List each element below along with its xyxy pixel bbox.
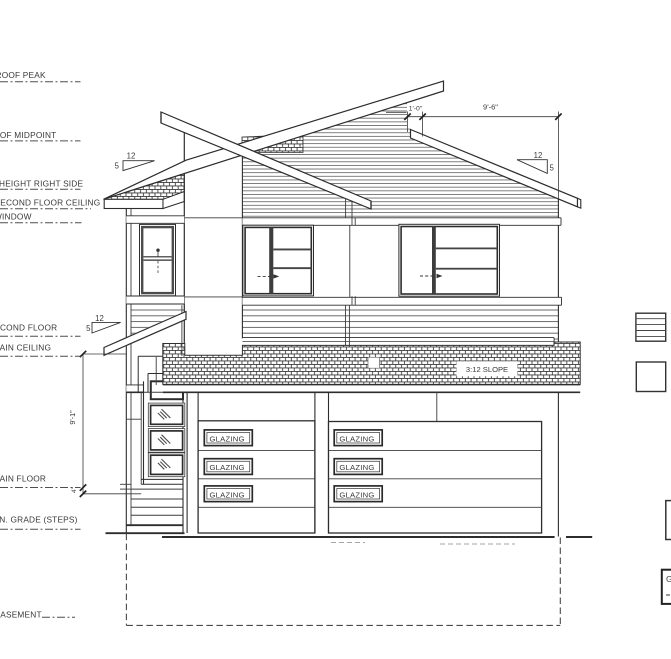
svg-text:9'-6": 9'-6": [483, 103, 498, 112]
svg-text:GLAZING: GLAZING: [339, 434, 374, 443]
svg-text:MAIN CEILING: MAIN CEILING: [0, 343, 51, 353]
svg-text:5: 5: [550, 164, 555, 173]
svg-text:9'-1": 9'-1": [68, 410, 77, 425]
svg-text:SECOND FLOOR CEILING: SECOND FLOOR CEILING: [0, 198, 100, 208]
svg-text:MAIN FLOOR: MAIN FLOOR: [0, 473, 46, 483]
svg-text:FIN. GRADE (STEPS): FIN. GRADE (STEPS): [0, 515, 78, 525]
svg-text:GLAZING: GLAZING: [339, 490, 374, 499]
svg-text:3:12 SLOPE: 3:12 SLOPE: [466, 365, 508, 374]
svg-text:1'-0": 1'-0": [409, 105, 423, 112]
svg-text:GLAZING: GLAZING: [210, 434, 245, 443]
svg-text:GLAZING: GLAZING: [210, 463, 245, 472]
svg-text:5: 5: [115, 161, 120, 170]
svg-text:SECOND FLOOR: SECOND FLOOR: [0, 322, 57, 332]
svg-text:WINDOW: WINDOW: [0, 211, 32, 221]
svg-text:ROOF PEAK: ROOF PEAK: [0, 70, 46, 80]
svg-text:GLAZING: GLAZING: [210, 490, 245, 499]
svg-text:HEIGHT RIGHT SIDE: HEIGHT RIGHT SIDE: [0, 178, 83, 188]
svg-text:ROOF MIDPOINT: ROOF MIDPOINT: [0, 130, 56, 140]
svg-text:12: 12: [95, 314, 104, 323]
svg-text:5: 5: [86, 324, 91, 333]
svg-text:G: G: [666, 574, 671, 584]
svg-text:GLAZING: GLAZING: [339, 463, 374, 472]
svg-text:BASEMENT: BASEMENT: [0, 609, 42, 619]
svg-text:12: 12: [534, 151, 543, 160]
svg-text:12: 12: [127, 151, 136, 160]
